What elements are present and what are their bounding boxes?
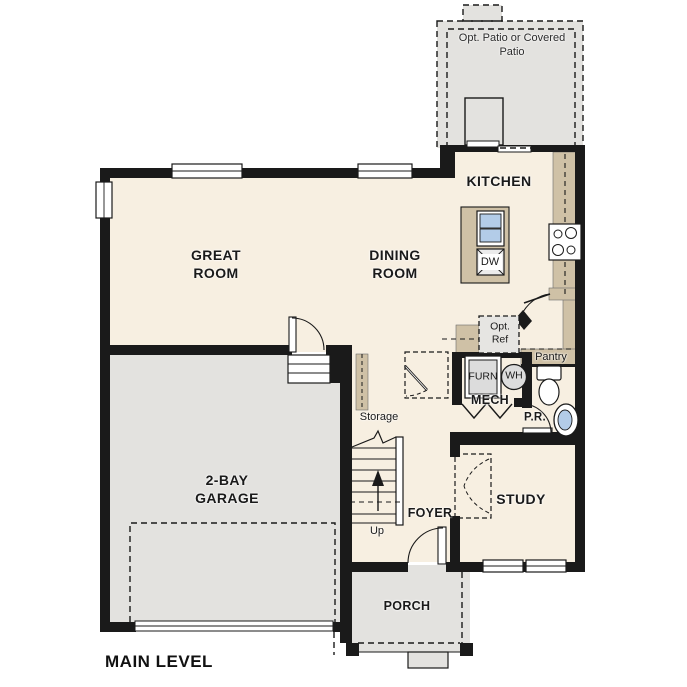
wall (345, 562, 408, 572)
label-garage: 2-BAY GARAGE (179, 472, 275, 508)
label-storage: Storage (349, 410, 409, 424)
stove (549, 224, 581, 260)
label-furnace: FURN (464, 370, 502, 383)
burner (566, 228, 577, 239)
toilet-bowl (539, 379, 559, 405)
wall (100, 345, 292, 355)
pantry-shelf-top (549, 288, 577, 300)
front-door-leaf (438, 527, 446, 564)
label-porch: PORCH (372, 598, 442, 614)
garage-entry-steps (288, 355, 330, 383)
porch-post (460, 643, 473, 656)
label-powder-room: P.R. (515, 411, 555, 426)
slider-door-panel (467, 141, 499, 147)
opt-ref-counter (456, 325, 479, 353)
toilet-tank (537, 366, 561, 380)
pr-door-leaf (523, 428, 552, 433)
wall (340, 345, 352, 643)
label-opt-ref: Opt. Ref (484, 321, 516, 348)
wall (100, 622, 136, 632)
slider-door-panel (498, 146, 531, 152)
burner (554, 230, 562, 238)
burner (553, 245, 564, 256)
floor-plan-drawing (0, 0, 687, 687)
label-dishwasher: DW (475, 255, 505, 269)
wall (450, 445, 460, 457)
patio-landing (465, 98, 503, 145)
wall (446, 562, 456, 572)
porch-post (346, 643, 359, 656)
pedestal-sink-basin (558, 410, 572, 430)
label-pantry: Pantry (523, 350, 579, 364)
label-patio: Opt. Patio or Covered Patio (451, 31, 573, 59)
sink-basin (480, 214, 501, 228)
label-water-heater: WH (499, 369, 529, 382)
floor-plan: GREAT ROOM DINING ROOM KITCHEN 2-BAY GAR… (0, 0, 687, 687)
label-dining-room: DINING ROOM (349, 247, 441, 283)
label-kitchen: KITCHEN (444, 173, 554, 191)
label-great-room: GREAT ROOM (170, 247, 262, 283)
plan-title: MAIN LEVEL (105, 652, 213, 672)
patio-bump (463, 5, 502, 21)
label-up: Up (362, 524, 392, 538)
kitchen-counter-upper (553, 152, 577, 224)
sink-basin (480, 229, 501, 242)
label-study: STUDY (476, 491, 566, 509)
label-mech: MECH (460, 392, 520, 408)
burner (567, 246, 575, 254)
label-foyer: FOYER (395, 505, 465, 521)
porch-step (408, 652, 448, 668)
wall (100, 168, 110, 632)
garage-house-door-leaf (289, 317, 296, 352)
wall (333, 622, 350, 632)
